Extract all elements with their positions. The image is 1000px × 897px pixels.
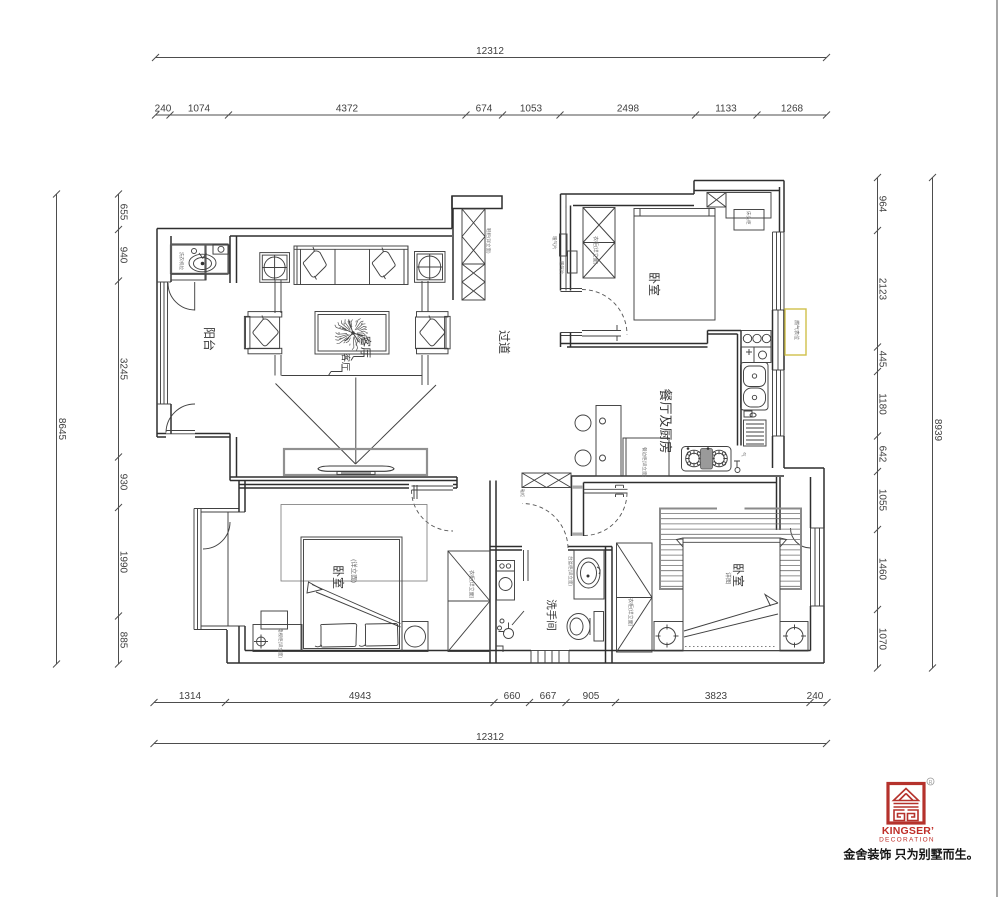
svg-text:1460: 1460 [877, 558, 888, 581]
svg-text:卧室: 卧室 [647, 272, 662, 296]
svg-text:3245: 3245 [118, 358, 129, 381]
svg-text:655: 655 [118, 204, 129, 221]
svg-text:卧室: 卧室 [731, 563, 746, 587]
svg-text:衣柜(详立面): 衣柜(详立面) [592, 236, 599, 265]
svg-text:1268: 1268 [781, 104, 804, 115]
svg-text:衣柜(详立面): 衣柜(详立面) [627, 598, 634, 627]
svg-text:暖气片: 暖气片 [551, 236, 558, 250]
svg-text:1314: 1314 [179, 691, 202, 702]
svg-text:2498: 2498 [617, 104, 640, 115]
svg-text:3823: 3823 [705, 691, 728, 702]
svg-text:金舍装饰 只为别墅而生。: 金舍装饰 只为别墅而生。 [842, 847, 978, 862]
svg-text:445: 445 [877, 351, 888, 368]
svg-text:1990: 1990 [118, 551, 129, 574]
svg-text:餐厅及厨房: 餐厅及厨房 [658, 388, 673, 453]
svg-text:鞋柜(详立面): 鞋柜(详立面) [485, 228, 492, 254]
svg-text:905: 905 [583, 691, 600, 702]
svg-text:964: 964 [877, 196, 888, 213]
svg-text:鞋柜: 鞋柜 [520, 489, 526, 497]
svg-text:KINGSER’: KINGSER’ [882, 825, 934, 837]
svg-text:(详立面): (详立面) [350, 559, 359, 583]
svg-text:暖气片: 暖气片 [558, 261, 565, 275]
svg-text:详图: 详图 [724, 572, 732, 584]
svg-text:4943: 4943 [349, 691, 372, 702]
svg-text:930: 930 [118, 474, 129, 491]
svg-text:1133: 1133 [715, 104, 737, 115]
svg-text:衣柜(详立面): 衣柜(详立面) [468, 570, 475, 599]
svg-text:667: 667 [540, 691, 557, 702]
svg-text:客厅: 客厅 [359, 336, 373, 358]
svg-text:8645: 8645 [56, 418, 67, 441]
svg-text:电视柜(详立面): 电视柜(详立面) [277, 628, 284, 658]
svg-text:240: 240 [807, 691, 824, 702]
svg-text:674: 674 [476, 104, 493, 115]
svg-text:气: 气 [741, 452, 747, 457]
svg-text:642: 642 [877, 446, 888, 463]
svg-text:12312: 12312 [476, 732, 504, 743]
svg-text:2123: 2123 [877, 278, 888, 301]
svg-text:卧室: 卧室 [331, 565, 346, 589]
svg-text:床头柜: 床头柜 [745, 211, 752, 225]
svg-text:1070: 1070 [877, 628, 888, 651]
svg-text:餐边柜(详立面): 餐边柜(详立面) [641, 447, 648, 477]
svg-text:阳台: 阳台 [202, 327, 217, 351]
svg-text:洗手间: 洗手间 [545, 599, 558, 631]
svg-text:过道: 过道 [497, 330, 511, 354]
svg-text:8939: 8939 [932, 419, 943, 442]
svg-text:DECORATION: DECORATION [879, 837, 935, 844]
svg-text:885: 885 [118, 632, 129, 649]
svg-text:1074: 1074 [188, 104, 211, 115]
svg-text:1053: 1053 [520, 104, 543, 115]
svg-text:1055: 1055 [877, 489, 888, 512]
svg-text:燃气表位: 燃气表位 [793, 320, 800, 340]
svg-text:洗衣机位: 洗衣机位 [178, 252, 185, 270]
svg-text:1180: 1180 [877, 393, 888, 415]
svg-text:940: 940 [118, 247, 129, 264]
svg-text:12312: 12312 [476, 46, 504, 57]
svg-text:4372: 4372 [336, 104, 359, 115]
svg-text:R: R [929, 780, 933, 786]
svg-text:台盆柜(详立面): 台盆柜(详立面) [567, 556, 574, 586]
svg-text:660: 660 [504, 691, 521, 702]
svg-text:240: 240 [155, 104, 172, 115]
